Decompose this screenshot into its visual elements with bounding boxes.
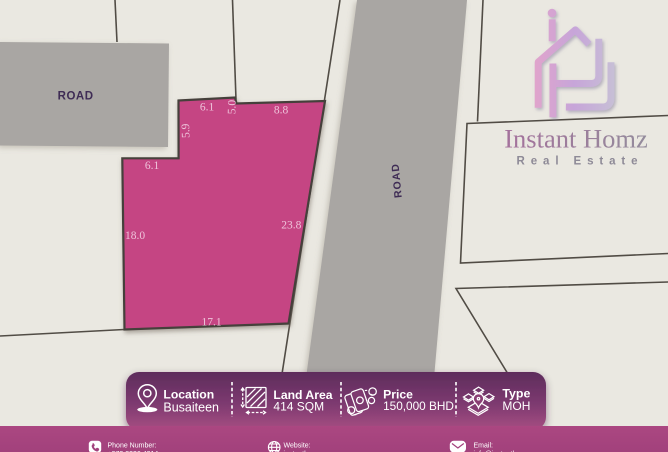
svg-text:150,000 BHD: 150,000 BHD: [383, 399, 454, 413]
svg-text:Instant Homz: Instant Homz: [504, 123, 648, 153]
svg-text:Real Estate: Real Estate: [517, 155, 644, 167]
svg-text:23.8: 23.8: [281, 219, 301, 231]
svg-text:Phone Number:: Phone Number:: [108, 443, 157, 450]
svg-text:5.9: 5.9: [180, 123, 193, 138]
svg-text:Email:: Email:: [474, 443, 494, 450]
svg-text:6.1: 6.1: [145, 160, 160, 172]
svg-text:MOH: MOH: [502, 399, 530, 413]
svg-text:6.1: 6.1: [200, 102, 215, 114]
svg-text:Website:: Website:: [284, 443, 311, 450]
svg-text:8.8: 8.8: [274, 105, 289, 117]
svg-text:18.0: 18.0: [125, 230, 145, 242]
svg-text:Busaiteen: Busaiteen: [163, 400, 219, 414]
svg-text:Location: Location: [163, 387, 214, 401]
svg-text:414 SQM: 414 SQM: [273, 400, 324, 414]
svg-text:5.0: 5.0: [226, 99, 239, 114]
svg-text:ROAD: ROAD: [58, 91, 94, 103]
svg-text:17.1: 17.1: [201, 317, 221, 329]
